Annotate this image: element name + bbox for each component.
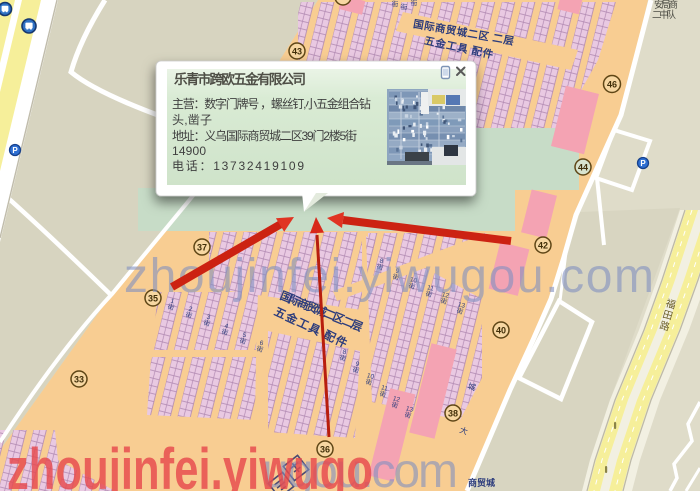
- svg-text:地址：义乌国际商贸城二区39门2楼5街: 地址：义乌国际商贸城二区39门2楼5街: [172, 128, 357, 143]
- svg-text:zhoujinfei.yiwugo: zhoujinfei.yiwugo: [7, 437, 373, 491]
- svg-text:P: P: [12, 146, 18, 155]
- svg-text:街: 街: [411, 0, 418, 7]
- svg-text:43: 43: [292, 46, 302, 56]
- svg-text:33: 33: [74, 374, 84, 384]
- svg-text:zhoujinfei.yiwugou.com: zhoujinfei.yiwugou.com: [124, 250, 654, 303]
- svg-text:电话：13732419109: 电话：13732419109: [172, 159, 304, 173]
- svg-text:商贸城: 商贸城: [468, 477, 495, 488]
- svg-text:44: 44: [578, 162, 588, 172]
- svg-text:14900: 14900: [172, 144, 206, 158]
- svg-text:42: 42: [538, 240, 548, 250]
- svg-text:头,凿子: 头,凿子: [172, 113, 212, 127]
- svg-text:主营：数字门牌号 ，螺丝钉,小五金组合钻: 主营：数字门牌号 ，螺丝钉,小五金组合钻: [172, 96, 371, 111]
- svg-text:46: 46: [607, 79, 617, 89]
- svg-text:二中队: 二中队: [652, 9, 676, 21]
- svg-text:街: 街: [392, 0, 399, 8]
- svg-text:乐青市跨欧五金有限公司: 乐青市跨欧五金有限公司: [174, 71, 306, 87]
- svg-text:街: 街: [401, 2, 408, 11]
- svg-text:38: 38: [448, 408, 458, 418]
- svg-text:40: 40: [496, 325, 506, 335]
- svg-text:P: P: [640, 159, 646, 168]
